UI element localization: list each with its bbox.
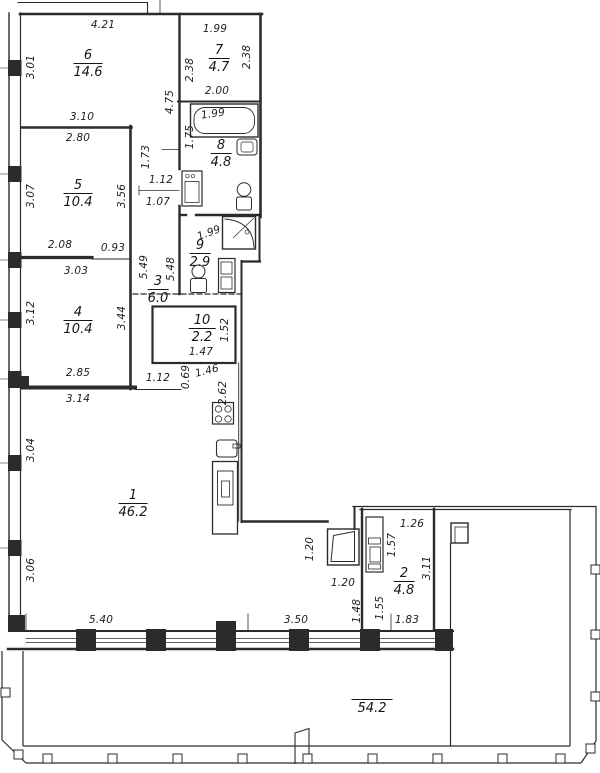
room-label-2: 24.8 <box>394 567 415 598</box>
floor-plan-page: 614.674.784.8510.492.936.0410.4102.2146.… <box>0 0 600 773</box>
dimension-label: 5.40 <box>89 614 113 626</box>
dimension-label: 1.47 <box>189 346 213 358</box>
room-label-7: 74.7 <box>209 44 230 75</box>
room-number: 1 <box>119 489 148 504</box>
dimension-label: 0.93 <box>101 242 125 254</box>
dimension-label: 2.08 <box>48 239 72 251</box>
dimension-label: 2.80 <box>66 132 90 144</box>
dimension-label: 3.07 <box>25 184 37 208</box>
room-area: 2.9 <box>190 254 211 270</box>
dimension-label: 1.99 <box>203 23 227 35</box>
dimension-label: 0.69 <box>180 365 192 389</box>
room-area: 10.4 <box>64 321 93 337</box>
room-area: 4.8 <box>394 582 415 598</box>
dimension-label: 3.14 <box>66 393 90 405</box>
room-label-5: 510.4 <box>64 179 93 210</box>
dimension-label: 3.06 <box>25 558 37 582</box>
dimension-label: 3.12 <box>25 301 37 325</box>
dimension-label: 3.10 <box>70 111 94 123</box>
dimension-label: 1.75 <box>184 125 196 149</box>
room-label-8: 84.8 <box>211 139 232 170</box>
dimension-label: 1.48 <box>351 599 363 623</box>
dimension-label: 1.20 <box>304 537 316 561</box>
dimension-label: 2.38 <box>241 45 253 69</box>
room-number: 8 <box>211 139 232 154</box>
dimension-label: 2.62 <box>217 381 229 405</box>
dimension-label: 1.99 <box>200 106 226 121</box>
room-number: 6 <box>74 49 103 64</box>
dimension-label: 2.38 <box>184 58 196 82</box>
room-label-1: 146.2 <box>119 489 148 520</box>
dimension-label: 1.12 <box>149 174 173 186</box>
room-area: 2.2 <box>189 329 216 345</box>
room-number: 5 <box>64 179 93 194</box>
room-number: 4 <box>64 306 93 321</box>
dimension-label: 1.73 <box>140 145 152 169</box>
dimension-label: 3.50 <box>284 614 308 626</box>
dimension-label: 5.49 <box>138 255 150 279</box>
room-label-9: 92.9 <box>190 239 211 270</box>
dimension-label: 5.48 <box>165 257 177 281</box>
room-area: 4.7 <box>209 59 230 75</box>
dimension-label: 1.52 <box>219 318 231 342</box>
dimension-label: 1.12 <box>146 372 170 384</box>
dimension-label: 1.20 <box>331 577 355 589</box>
dimension-label: 3.56 <box>116 184 128 208</box>
room-area: 14.6 <box>74 64 103 80</box>
terrace-area-label: 54.2 <box>352 699 393 716</box>
room-area: 6.0 <box>148 290 169 306</box>
room-number: 7 <box>209 44 230 59</box>
room-number: 2 <box>394 567 415 582</box>
dimension-label: 1.83 <box>395 614 419 626</box>
dimension-label: 3.11 <box>421 556 433 580</box>
dimension-label: 2.85 <box>66 367 90 379</box>
dimension-label: 2.00 <box>205 85 229 97</box>
room-label-10: 102.2 <box>189 314 216 345</box>
dimension-label: 4.75 <box>164 90 176 114</box>
dimension-label: 1.46 <box>194 362 220 379</box>
labels-layer: 614.674.784.8510.492.936.0410.4102.2146.… <box>0 0 600 773</box>
dimension-label: 4.21 <box>91 19 115 31</box>
dimension-label: 3.03 <box>64 265 88 277</box>
dimension-label: 3.04 <box>25 438 37 462</box>
room-number: 10 <box>189 314 216 329</box>
room-area: 46.2 <box>119 504 148 520</box>
room-area: 4.8 <box>211 154 232 170</box>
room-label-6: 614.6 <box>74 49 103 80</box>
dimension-label: 1.55 <box>374 596 386 620</box>
room-area: 10.4 <box>64 194 93 210</box>
dimension-label: 1.26 <box>400 518 424 530</box>
dimension-label: 1.07 <box>146 196 170 208</box>
dimension-label: 1.57 <box>386 533 398 557</box>
dimension-label: 3.01 <box>25 55 37 79</box>
dimension-label: 3.44 <box>116 306 128 330</box>
room-label-4: 410.4 <box>64 306 93 337</box>
